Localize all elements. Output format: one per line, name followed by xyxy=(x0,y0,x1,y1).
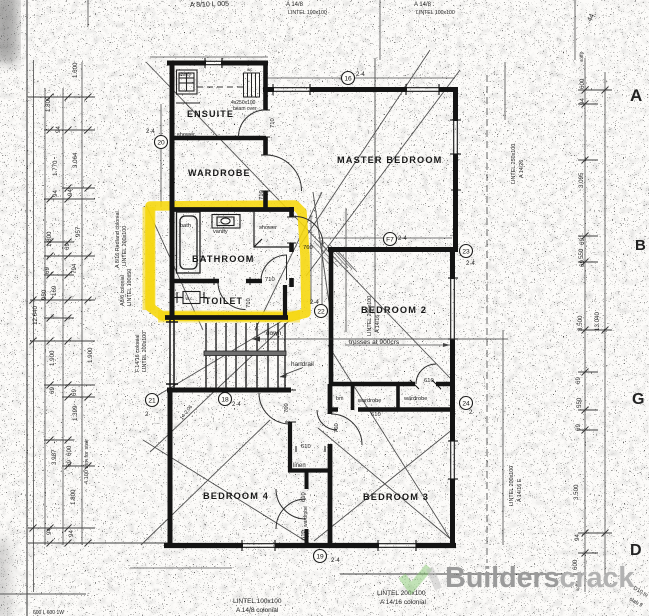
svg-text:600: 600 xyxy=(579,78,586,89)
svg-text:shower: shower xyxy=(177,132,195,138)
svg-text:BEDROOM 4: BEDROOM 4 xyxy=(203,491,269,501)
svg-text:3.500: 3.500 xyxy=(577,315,584,331)
svg-text:550: 550 xyxy=(576,397,583,408)
svg-text:1.900: 1.900 xyxy=(49,350,56,366)
svg-text:94: 94 xyxy=(55,126,62,133)
svg-text:wardrobe: wardrobe xyxy=(357,398,381,404)
svg-text:LINTEL 200x100: LINTEL 200x100 xyxy=(122,226,128,266)
svg-text:A 14/16 colonial: A 14/16 colonial xyxy=(380,599,426,606)
svg-text:G: G xyxy=(632,391,644,408)
svg-text:LINTEL 200x100: LINTEL 200x100 xyxy=(509,466,515,506)
svg-text:A 14/8 colonial: A 14/8 colonial xyxy=(236,607,279,614)
svg-text:down: down xyxy=(266,330,282,337)
svg-text:69: 69 xyxy=(64,243,71,250)
svg-text:linen: linen xyxy=(293,463,306,469)
svg-text:610: 610 xyxy=(301,492,307,502)
svg-text:18: 18 xyxy=(221,397,229,404)
svg-text:A 14/16: A 14/16 xyxy=(375,315,381,333)
svg-text:LINTEL 200x100: LINTEL 200x100 xyxy=(142,332,148,372)
svg-text:21: 21 xyxy=(148,398,156,405)
svg-text:wardrobe: wardrobe xyxy=(303,506,309,527)
svg-text:A 14/16 E: A 14/16 E xyxy=(517,478,523,502)
svg-text:LINTEL 200x100: LINTEL 200x100 xyxy=(377,590,426,597)
svg-text:2·4: 2·4 xyxy=(232,402,241,408)
svg-text:2·: 2· xyxy=(145,412,150,418)
svg-text:3.987: 3.987 xyxy=(51,449,58,465)
svg-text:wardrobe: wardrobe xyxy=(403,396,427,402)
svg-text:3.500: 3.500 xyxy=(573,484,580,500)
svg-text:2·4: 2·4 xyxy=(146,129,155,135)
svg-text:2·4: 2·4 xyxy=(466,261,475,267)
svg-text:wc: wc xyxy=(247,67,253,72)
svg-text:22: 22 xyxy=(317,309,325,316)
svg-text:69: 69 xyxy=(66,460,73,467)
svg-text:69: 69 xyxy=(575,377,582,384)
svg-text:19: 19 xyxy=(316,554,324,561)
svg-text:LINTEL 100x100: LINTEL 100x100 xyxy=(416,10,455,16)
svg-text:ENSUITE: ENSUITE xyxy=(187,109,234,119)
svg-text:610: 610 xyxy=(371,412,381,418)
svg-text:2·4: 2·4 xyxy=(331,558,340,564)
svg-text:94: 94 xyxy=(574,534,581,541)
svg-text:shower: shower xyxy=(259,225,277,231)
svg-text:F7: F7 xyxy=(386,237,394,244)
svg-text:2·4: 2·4 xyxy=(398,236,407,242)
svg-text:69: 69 xyxy=(71,389,78,396)
svg-text:4.100 trim for stair: 4.100 trim for stair xyxy=(84,439,90,484)
svg-text:1.900: 1.900 xyxy=(87,347,94,363)
svg-text:13.040: 13.040 xyxy=(594,312,601,331)
svg-text:1.770: 1.770 xyxy=(52,160,59,176)
svg-text:A 14/26: A 14/26 xyxy=(519,160,525,178)
svg-text:12.640: 12.640 xyxy=(32,306,39,325)
svg-text:16: 16 xyxy=(344,76,352,83)
svg-text:94: 94 xyxy=(68,530,75,537)
svg-text:soffit: soffit xyxy=(579,51,585,62)
svg-text:bm: bm xyxy=(336,396,344,402)
svg-text:LINTEL 100x50: LINTEL 100x50 xyxy=(127,269,133,306)
svg-text:A 14/8: A 14/8 xyxy=(414,2,432,8)
svg-text:LINTEL 200x100: LINTEL 200x100 xyxy=(367,296,373,336)
svg-text:760: 760 xyxy=(334,423,340,433)
svg-text:610: 610 xyxy=(301,530,307,540)
svg-text:beam over: beam over xyxy=(233,106,257,112)
svg-text:94: 94 xyxy=(67,189,74,196)
svg-text:w.c.: w.c. xyxy=(186,297,194,302)
svg-text:A8/6 colonial: A8/6 colonial xyxy=(120,275,126,306)
svg-text:WARDROBE: WARDROBE xyxy=(188,168,251,178)
svg-text:794: 794 xyxy=(71,263,78,274)
svg-text:760: 760 xyxy=(303,245,313,251)
svg-text:MASTER BEDROOM: MASTER BEDROOM xyxy=(337,155,442,165)
svg-text:vanity: vanity xyxy=(179,72,192,77)
svg-text:1.600: 1.600 xyxy=(72,62,79,78)
svg-text:TOILET: TOILET xyxy=(205,296,243,306)
svg-text:600: 600 xyxy=(66,445,73,456)
svg-text:A 8/10 L 005: A 8/10 L 005 xyxy=(190,1,229,9)
svg-text:69: 69 xyxy=(44,267,51,274)
svg-text:LINTEL 250x100: LINTEL 250x100 xyxy=(511,144,517,184)
svg-text:F.14/16 colonial: F.14/16 colonial xyxy=(135,335,141,372)
svg-text:3.095: 3.095 xyxy=(578,172,585,188)
svg-text:B: B xyxy=(635,237,646,254)
svg-text:760: 760 xyxy=(284,403,290,413)
svg-text:Builderscrack: Builderscrack xyxy=(445,562,635,594)
svg-text:vanity: vanity xyxy=(213,229,228,235)
svg-text:BATHROOM: BATHROOM xyxy=(192,254,255,264)
svg-text:957: 957 xyxy=(75,226,82,237)
svg-text:169: 169 xyxy=(51,285,58,296)
svg-text:2·: 2· xyxy=(469,410,474,416)
svg-text:LINTEL 100x100: LINTEL 100x100 xyxy=(288,10,327,16)
svg-text:trusses at 900crs: trusses at 900crs xyxy=(349,339,400,346)
svg-text:D: D xyxy=(630,542,642,559)
svg-text:600 L 600 1W: 600 L 600 1W xyxy=(33,610,64,616)
svg-text:950: 950 xyxy=(41,289,48,300)
svg-text:20: 20 xyxy=(157,140,165,147)
svg-text:610: 610 xyxy=(424,378,434,384)
svg-text:710: 710 xyxy=(246,298,252,308)
svg-text:550: 550 xyxy=(578,248,585,259)
svg-text:bath: bath xyxy=(180,223,191,229)
svg-text:A: A xyxy=(630,86,642,105)
svg-text:710: 710 xyxy=(270,118,276,128)
svg-text:1.800: 1.800 xyxy=(70,489,77,505)
svg-text:BEDROOM 3: BEDROOM 3 xyxy=(363,492,429,502)
svg-text:69: 69 xyxy=(579,260,586,267)
svg-text:handrail: handrail xyxy=(291,361,314,368)
svg-text:710: 710 xyxy=(259,190,265,200)
svg-text:BEDROOM 2: BEDROOM 2 xyxy=(361,305,427,315)
svg-text:A 14/8: A 14/8 xyxy=(286,2,304,8)
svg-text:69: 69 xyxy=(49,387,56,394)
svg-text:23: 23 xyxy=(462,249,470,256)
svg-text:2·4: 2·4 xyxy=(356,72,365,78)
svg-text:610: 610 xyxy=(301,444,311,450)
svg-text:3.064: 3.064 xyxy=(72,152,79,168)
svg-text:710: 710 xyxy=(265,277,275,283)
svg-text:1.399: 1.399 xyxy=(72,405,79,421)
svg-text:LINTEL 100x100: LINTEL 100x100 xyxy=(233,598,282,605)
svg-text:24: 24 xyxy=(462,401,470,408)
svg-text:A 8/16 Redland colonial: A 8/16 Redland colonial xyxy=(115,211,121,268)
svg-text:69: 69 xyxy=(575,424,582,431)
